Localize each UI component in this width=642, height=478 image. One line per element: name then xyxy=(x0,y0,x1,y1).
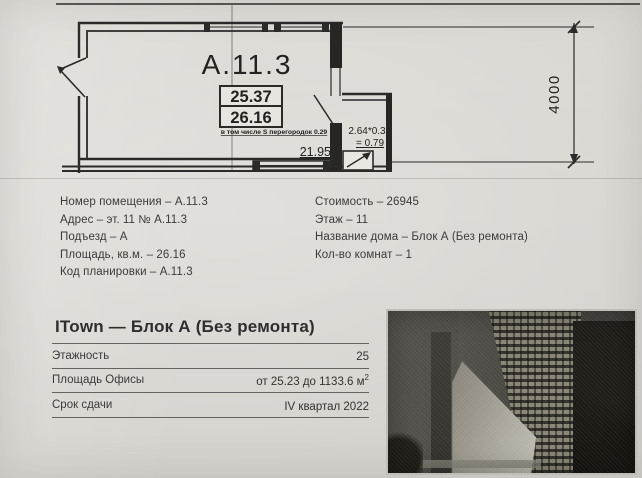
photo-grain-overlay xyxy=(388,311,635,473)
row-label: Срок сдачи xyxy=(52,399,112,411)
partitions-note: в том числе S перегородок 0.29 xyxy=(221,129,328,136)
width-dimension: 21.95 xyxy=(300,145,331,159)
row-label: Этажность xyxy=(52,350,109,362)
area-upper-value: 25.37 xyxy=(230,88,271,106)
scanned-document-page: А.11.3 25.37 26.16 в том числе S перегор… xyxy=(0,0,642,478)
row-value: 25 xyxy=(356,348,369,363)
shaft-symbol xyxy=(343,151,373,170)
row-label: Площадь Офисы xyxy=(52,374,144,386)
row-value: IV квартал 2022 xyxy=(284,398,369,413)
details-left-column: Номер помещения – А.11.3 Адрес – эт. 11 … xyxy=(60,194,208,282)
table-row-floors: Этажность 25 xyxy=(52,344,369,369)
shaft-calc-top: 2.64*0.3 xyxy=(348,126,386,137)
floor-plan-drawing: А.11.3 25.37 26.16 в том числе S перегор… xyxy=(0,0,642,185)
entry-door-swing xyxy=(57,58,86,97)
unit-title: А.11.3 xyxy=(202,49,293,80)
detail-area: Площадь, кв.м. – 26.16 xyxy=(60,247,208,265)
window-bottom xyxy=(253,161,330,170)
paper-crease xyxy=(0,178,642,179)
interior-door-swing xyxy=(314,95,333,124)
summary-table: Этажность 25 Площадь Офисы от 25.23 до 1… xyxy=(52,343,369,418)
detail-price: Стоимость – 26945 xyxy=(315,194,528,212)
summary-title: ITown — Блок А (Без ремонта) xyxy=(55,317,315,337)
building-photo xyxy=(386,309,637,475)
detail-address: Адрес – эт. 11 № А.11.3 xyxy=(60,212,208,230)
row-value: от 25.23 до 1133.6 м2 xyxy=(256,373,369,388)
detail-rooms-count: Кол-во комнат – 1 xyxy=(315,247,528,265)
detail-entrance: Подъезд – А xyxy=(60,229,208,247)
height-dimension: 4000 xyxy=(546,74,563,113)
details-right-column: Стоимость – 26945 Этаж – 11 Название дом… xyxy=(315,194,528,264)
table-row-office-area: Площадь Офисы от 25.23 до 1133.6 м2 xyxy=(52,369,369,394)
detail-room-number: Номер помещения – А.11.3 xyxy=(60,194,208,212)
area-lower-value: 26.16 xyxy=(230,109,271,127)
detail-layout-code: Код планировки – А.11.3 xyxy=(60,264,208,282)
shaft-calc-bottom: = 0.79 xyxy=(356,138,385,149)
detail-floor: Этаж – 11 xyxy=(315,212,528,230)
table-row-completion-date: Срок сдачи IV квартал 2022 xyxy=(52,393,369,418)
detail-building-name: Название дома – Блок А (Без ремонта) xyxy=(315,229,528,247)
